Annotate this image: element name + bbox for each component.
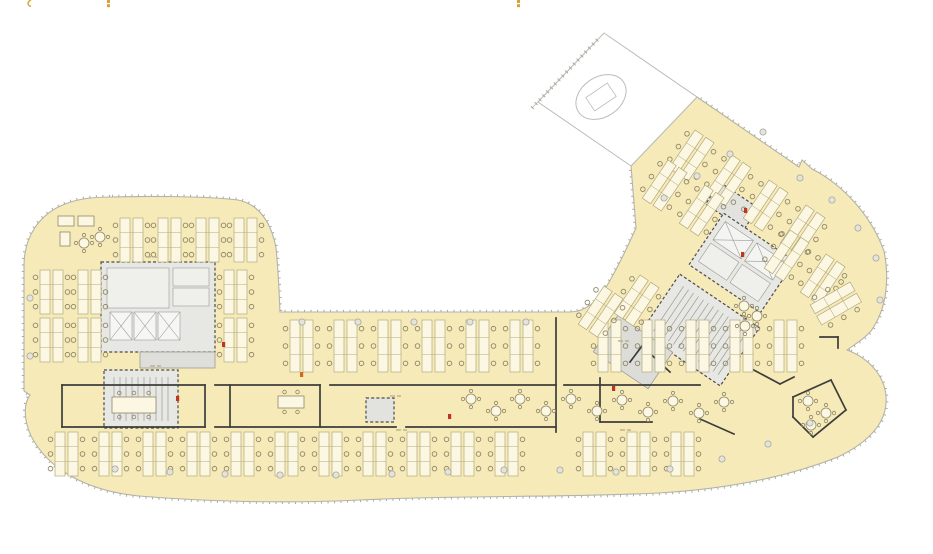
accent-mark [448,414,451,419]
desk-bench [596,432,606,476]
table-top [491,406,501,416]
table-top [643,407,653,417]
table-top [719,397,729,407]
top-edge-text-fragments [28,0,520,7]
desk-bench [290,320,300,372]
desk-bench [244,432,254,476]
table-top [821,408,831,418]
desk-bench [699,320,709,372]
column [613,469,619,475]
desk-bench [451,432,461,476]
desk-bench [78,270,88,314]
desk-bench [422,320,432,372]
desk-bench [53,318,63,362]
desk-bench [655,320,665,372]
column [829,197,835,203]
lounge-sofa [78,216,94,226]
column [523,319,529,325]
desk-bench [53,270,63,314]
desk-bench [378,320,388,372]
desk-bench [55,432,65,476]
column [501,467,507,473]
meeting-table [112,397,156,413]
column [467,319,473,325]
column [873,255,879,261]
table-top [803,396,813,406]
column [797,175,803,181]
accent-mark [744,208,747,213]
desk-bench [640,432,650,476]
desk-bench [774,320,784,372]
desk-bench [523,320,533,372]
desk-bench [143,432,153,476]
desk-bench [407,432,417,476]
table-top [541,406,551,416]
desk-bench [237,270,247,314]
table-top [694,408,704,418]
desk-bench [133,218,143,262]
desk-bench [435,320,445,372]
table-top [592,406,602,416]
column [333,472,339,478]
desk-bench [224,318,234,362]
desk-bench [332,432,342,476]
desk-bench [510,320,520,372]
desk-bench [224,270,234,314]
accent-mark [612,386,615,391]
desk-bench [68,432,78,476]
accent-mark [176,396,179,401]
desk-bench [363,432,373,476]
table-top [668,396,678,406]
desk-bench [508,432,518,476]
desk-bench [391,320,401,372]
column [112,466,118,472]
column [727,151,733,157]
accent-mark [222,342,225,347]
desk-bench [334,320,344,372]
table-top [79,238,89,248]
column [389,471,395,477]
desk-bench [686,320,696,372]
desk-bench [627,432,637,476]
floor-plan-canvas [0,0,933,554]
desk-bench [40,270,50,314]
desk-bench [275,432,285,476]
desk-bench [158,218,168,262]
desk-bench [464,432,474,476]
core-cell [173,268,209,286]
column [877,297,883,303]
desk-bench [466,320,476,372]
text-fragment [107,4,110,7]
desk-bench [479,320,489,372]
accent-mark [300,372,303,377]
column [411,319,417,325]
column [355,319,361,325]
column [557,467,563,473]
desk-bench [91,270,101,314]
desk-bench [120,218,130,262]
text-fragment [107,0,110,3]
desk-bench [730,320,740,372]
column [807,420,813,426]
lounge-sofa [58,216,74,226]
column [27,353,33,359]
table-top [515,394,525,404]
column [445,469,451,475]
desk-bench [684,432,694,476]
core-cell [173,288,209,306]
column [661,195,667,201]
desk-bench [234,218,244,262]
chair-icon [48,466,53,471]
floor-plan-page [0,0,933,554]
text-fragment [517,4,520,7]
core-left-main [101,262,215,352]
table-top [617,395,627,405]
accent-mark [741,252,744,257]
desk-bench [99,432,109,476]
desk-bench [787,320,797,372]
desk-bench [40,318,50,362]
table-top [95,232,105,242]
desk-bench [303,320,313,372]
desk-bench [237,318,247,362]
desk-bench [583,432,593,476]
desk-bench [171,218,181,262]
desk-bench [611,320,621,372]
desk-bench [247,218,257,262]
desk-bench [288,432,298,476]
column [667,466,673,472]
column [694,173,700,179]
column [222,471,228,477]
column [855,225,861,231]
column [27,295,33,301]
core-mid-small [366,398,394,422]
desk-bench [78,318,88,362]
desk-bench [187,432,197,476]
table-top [739,301,749,311]
desk-bench [196,218,206,262]
desk-bench [642,320,652,372]
column [760,129,766,135]
desk-bench [200,432,210,476]
table-top [466,394,476,404]
table-top [752,311,762,321]
column [277,472,283,478]
desk-bench [420,432,430,476]
column [167,469,173,475]
core-cell [107,268,169,308]
column [765,441,771,447]
desk-bench [347,320,357,372]
desk-bench [91,318,101,362]
text-fragment [517,0,520,3]
lounge-sofa [60,232,70,246]
desk-bench [319,432,329,476]
table-top [740,321,750,331]
column [719,456,725,462]
desk-bench [209,218,219,262]
column [299,319,305,325]
text-fragment [28,0,31,7]
chair-icon [593,287,599,293]
desk-bench [156,432,166,476]
table-top [566,394,576,404]
core-mid-small-slab [366,398,394,422]
desk-bench [231,432,241,476]
desk-bench [376,432,386,476]
meeting-table [278,396,304,408]
